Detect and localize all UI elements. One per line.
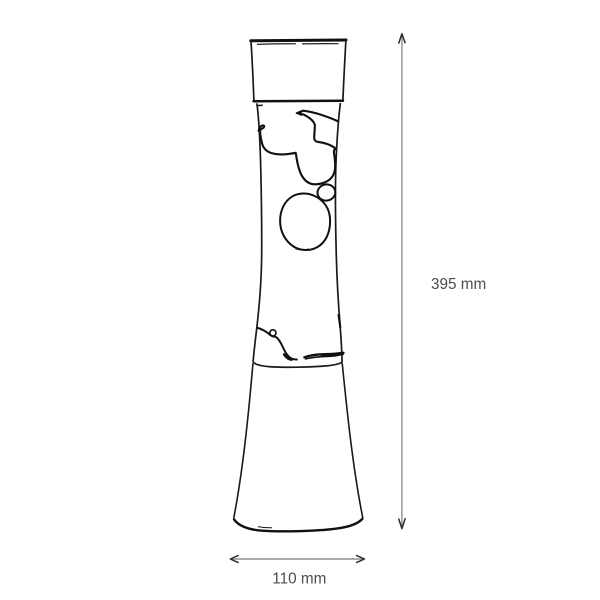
svg-text:110 mm: 110 mm — [272, 570, 326, 587]
svg-text:395 mm: 395 mm — [431, 276, 486, 293]
